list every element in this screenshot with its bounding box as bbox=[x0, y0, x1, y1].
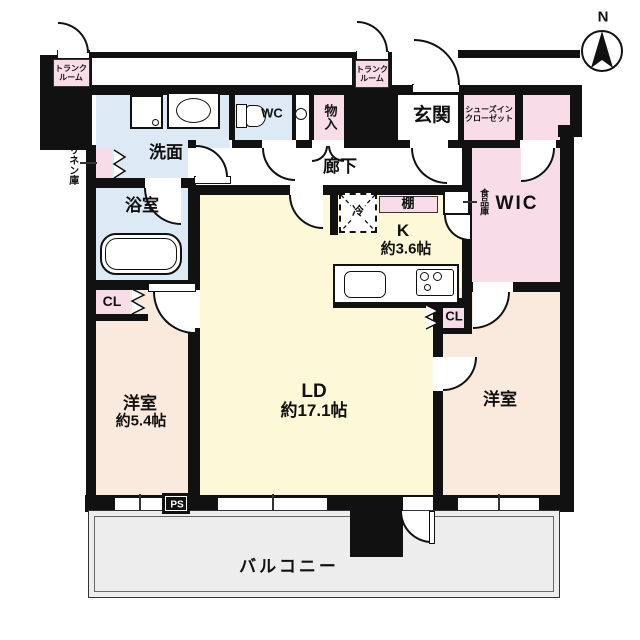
hand-sink bbox=[295, 108, 307, 120]
bedroom-left-name-label: 洋室 bbox=[123, 394, 157, 414]
wic-label: WIC bbox=[496, 193, 539, 215]
trunk1-label: トランク ルーム bbox=[55, 64, 87, 82]
living-name-label: LD bbox=[301, 381, 326, 403]
fridge-label: 冷 bbox=[351, 205, 365, 219]
wall bbox=[433, 306, 443, 497]
pantry-label: 食品庫 bbox=[479, 189, 489, 216]
closet2-label: CL bbox=[445, 310, 462, 325]
corridor-strip bbox=[92, 58, 355, 85]
wall bbox=[229, 92, 235, 140]
storage-label: 物入 bbox=[322, 104, 337, 130]
closet1-label: CL bbox=[103, 293, 122, 309]
wall bbox=[458, 50, 580, 58]
wall bbox=[309, 92, 314, 140]
door-opening bbox=[290, 185, 323, 195]
door-opening bbox=[520, 140, 556, 148]
balcony-column bbox=[350, 495, 403, 557]
wall bbox=[188, 185, 200, 497]
stove-burner bbox=[420, 272, 429, 281]
wall bbox=[458, 88, 464, 148]
wall bbox=[344, 92, 398, 148]
door-leaf bbox=[356, 51, 389, 60]
linen-pointer-line bbox=[80, 162, 97, 164]
washer-drain bbox=[152, 119, 159, 126]
door-opening bbox=[433, 357, 443, 391]
door-opening bbox=[145, 178, 181, 188]
pipe-space-box: PS bbox=[162, 493, 190, 514]
door-leaf bbox=[194, 176, 231, 184]
wc-label: WC bbox=[261, 107, 283, 122]
wall bbox=[88, 52, 390, 58]
bathtub-inner bbox=[105, 238, 177, 270]
wall bbox=[560, 130, 574, 508]
door-opening bbox=[410, 140, 448, 148]
washroom-label: 洗面 bbox=[149, 143, 183, 163]
door-leaf bbox=[148, 283, 196, 292]
compass-icon bbox=[578, 25, 626, 75]
entrance-door-arc bbox=[414, 39, 460, 85]
entrance-label: 玄関 bbox=[413, 105, 451, 127]
wall bbox=[86, 145, 96, 497]
compass-north-label: N bbox=[598, 8, 609, 25]
shoes-in-closet-label: シューズイン クローゼット bbox=[465, 105, 513, 123]
shelf-label: 棚 bbox=[401, 197, 414, 212]
kitchen-sink bbox=[344, 271, 386, 298]
wall bbox=[92, 85, 578, 95]
hallway-label: 廊下 bbox=[323, 157, 357, 177]
wall bbox=[188, 185, 462, 195]
bifold-door-icon bbox=[424, 304, 440, 330]
room-linen bbox=[96, 148, 112, 178]
floor-plan: PS N トランク ルーム トランク ルーム リネン庫 洗面 WC 物入 玄関 … bbox=[0, 0, 640, 640]
entrance-door-leaf bbox=[412, 84, 460, 93]
vanity-sink bbox=[176, 98, 211, 123]
bifold-door-icon bbox=[112, 149, 127, 179]
bifold-door-icon bbox=[130, 288, 146, 315]
door-opening bbox=[262, 140, 296, 148]
balcony-inner-line bbox=[94, 516, 554, 592]
kitchen-size-label: 約3.6帖 bbox=[381, 240, 432, 257]
door-arc bbox=[357, 21, 388, 52]
door-opening bbox=[188, 148, 196, 178]
bedroom-right-name-label: 洋室 bbox=[483, 390, 517, 410]
stove-burner bbox=[424, 284, 431, 291]
linen-label: リネン庫 bbox=[66, 145, 78, 185]
wall bbox=[464, 300, 472, 334]
bathroom-label: 浴室 bbox=[125, 196, 159, 216]
wall bbox=[515, 88, 523, 148]
kitchen-name-label: K bbox=[397, 221, 409, 241]
wall bbox=[96, 314, 148, 321]
bedroom-left-size-label: 約5.4帖 bbox=[116, 412, 167, 429]
wall bbox=[330, 185, 338, 235]
pipe-space-label: PS bbox=[170, 499, 183, 511]
stove-burner bbox=[433, 272, 442, 281]
trunk2-label: トランク ルーム bbox=[356, 65, 388, 83]
balcony bbox=[88, 510, 560, 598]
pantry-pointer-line bbox=[463, 201, 477, 203]
balcony-label: バルコニー bbox=[239, 557, 339, 577]
living-size-label: 約17.1帖 bbox=[280, 401, 347, 421]
door-opening bbox=[473, 282, 513, 292]
door-arc bbox=[58, 22, 89, 53]
balcony-door-leaf bbox=[429, 511, 435, 544]
door-opening bbox=[403, 497, 433, 511]
